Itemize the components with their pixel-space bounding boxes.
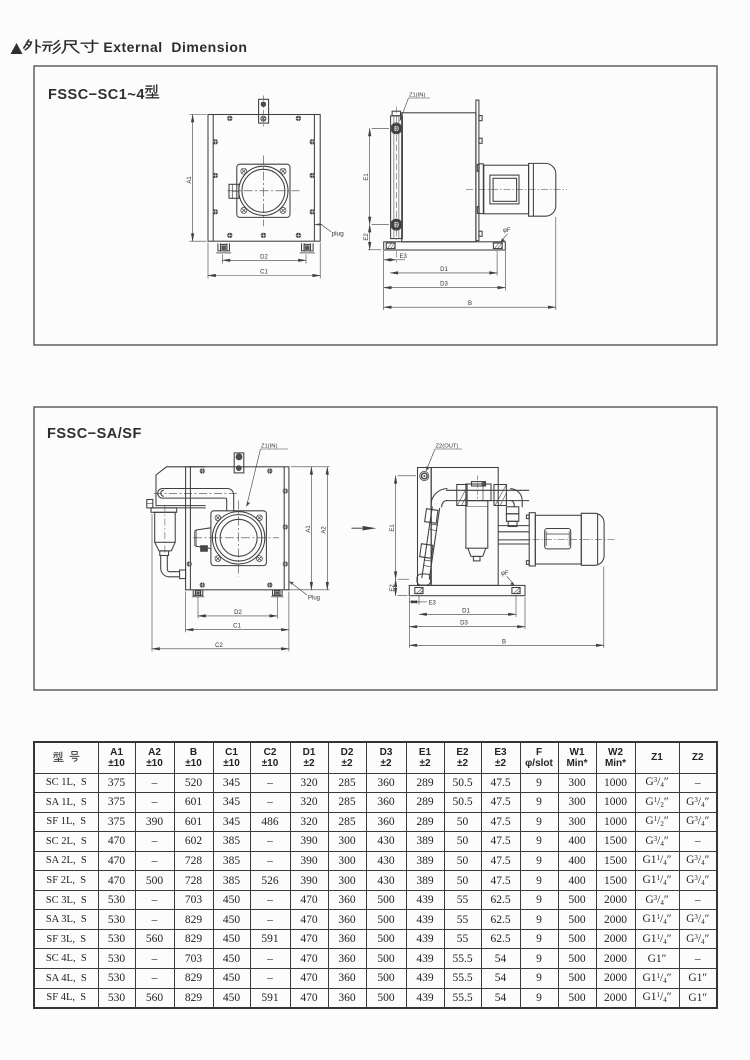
svg-text:plug: plug — [332, 231, 345, 238]
svg-text:E2: E2 — [390, 584, 396, 592]
svg-text:Plug: Plug — [308, 596, 320, 602]
svg-text:D3: D3 — [440, 282, 448, 288]
svg-text:E1: E1 — [390, 524, 396, 532]
svg-text:Z2(OUT): Z2(OUT) — [436, 444, 459, 450]
svg-text:φF: φF — [501, 571, 509, 577]
svg-text:D2: D2 — [234, 610, 242, 616]
svg-text:A1: A1 — [306, 525, 312, 533]
svg-text:D3: D3 — [460, 621, 468, 627]
svg-text:φF: φF — [503, 228, 511, 234]
svg-text:A2: A2 — [322, 526, 328, 534]
svg-text:B: B — [502, 639, 506, 645]
svg-text:Z1(IN): Z1(IN) — [409, 93, 425, 99]
svg-text:B: B — [468, 301, 472, 307]
svg-text:D1: D1 — [440, 267, 448, 273]
svg-text:C2: C2 — [215, 643, 223, 649]
svg-text:D2: D2 — [260, 254, 268, 260]
svg-text:E3: E3 — [400, 254, 408, 260]
svg-text:C1: C1 — [233, 624, 241, 630]
svg-text:E1: E1 — [364, 173, 370, 181]
svg-text:E2: E2 — [364, 233, 370, 241]
svg-text:D1: D1 — [462, 608, 470, 614]
svg-text:Z1(IN): Z1(IN) — [261, 444, 277, 450]
svg-text:E3: E3 — [429, 601, 437, 607]
svg-text:C1: C1 — [260, 270, 268, 276]
svg-text:A1: A1 — [187, 176, 193, 184]
